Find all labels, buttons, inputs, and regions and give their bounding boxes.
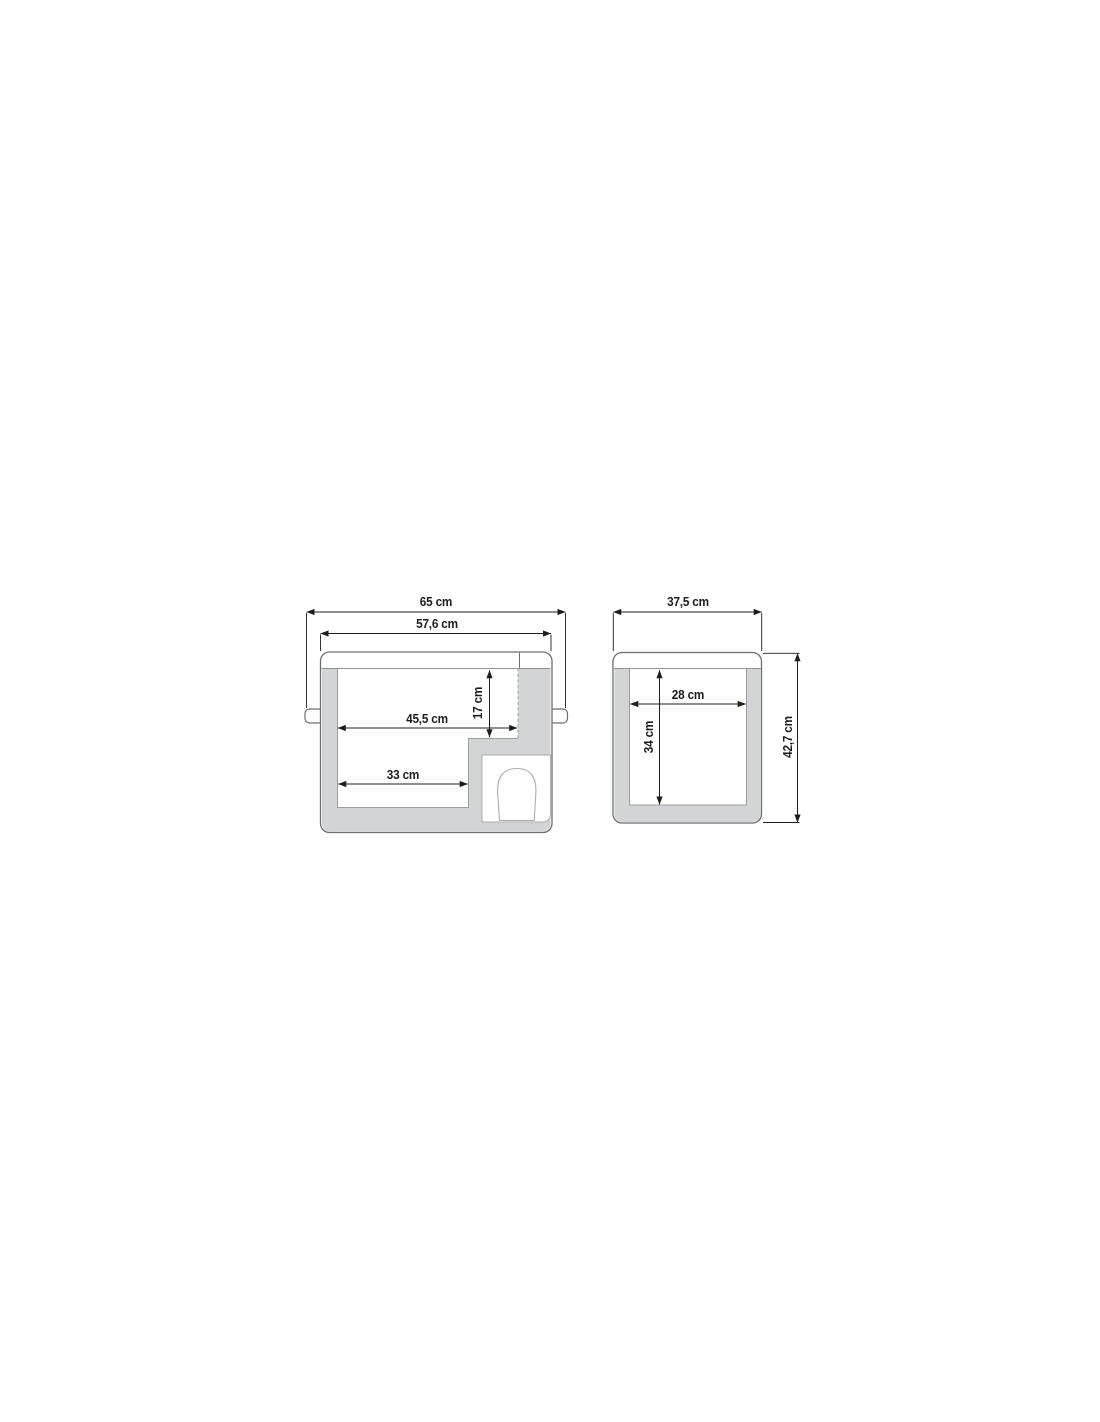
label-interior-width: 28 cm — [672, 688, 704, 702]
front-view — [613, 612, 800, 823]
compressor-dome — [498, 769, 536, 821]
label-overall-height: 42,7 cm — [781, 716, 795, 758]
label-overall-depth: 37,5 cm — [667, 595, 709, 609]
label-step-height: 17 cm — [471, 687, 485, 719]
technical-drawing — [0, 0, 1100, 1422]
label-interior-upper-width: 45,5 cm — [406, 712, 448, 726]
front-body-outline — [613, 653, 762, 824]
label-interior-lower-width: 33 cm — [387, 768, 419, 782]
label-overall-width: 65 cm — [420, 595, 452, 609]
dim-body-width — [321, 634, 552, 652]
label-body-width: 57,6 cm — [416, 617, 458, 631]
dim-overall-depth — [613, 612, 761, 651]
label-interior-height: 34 cm — [642, 721, 656, 753]
diagram-canvas: 65 cm 57,6 cm 45,5 cm 17 cm 33 cm 37,5 c… — [0, 0, 1100, 1422]
